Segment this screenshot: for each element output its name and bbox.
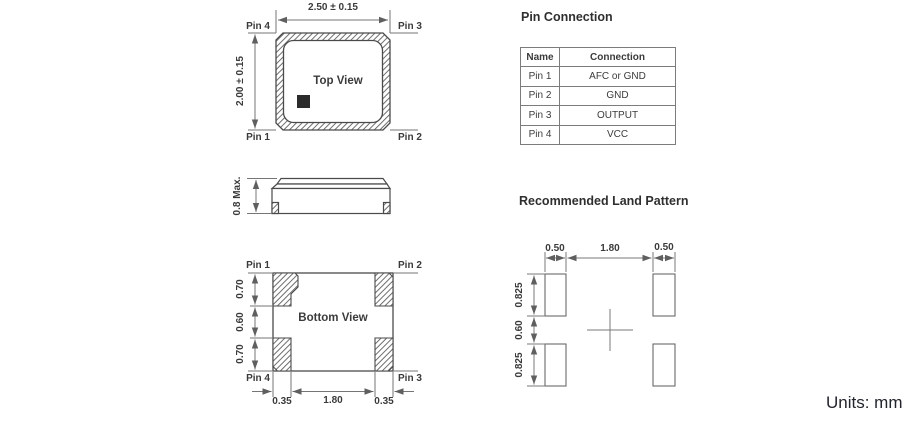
top-view-width-dimension: 2.50 ± 0.15	[308, 3, 358, 13]
land-pad-width-right: 0.50	[654, 243, 673, 253]
bottom-view-dim-top: 0.70	[236, 279, 246, 298]
drawing-linework	[0, 0, 915, 431]
bottom-view-pad-pitch: 1.80	[323, 396, 342, 406]
package-drawing-sheet: 2.50 ± 0.15 2.00 ± 0.15 Pin 4 Pin 3 Pin …	[0, 0, 915, 431]
top-view-height-dimension: 2.00 ± 0.15	[236, 56, 246, 106]
land-pad-height-bottom: 0.825	[515, 352, 525, 377]
pin-connection-table: Name Connection Pin 1 AFC or GND Pin 2 G…	[520, 47, 676, 145]
bottom-view-title: Bottom View	[298, 313, 367, 325]
land-pad-gap: 1.80	[600, 244, 619, 254]
bottom-view-pin1-label: Pin 1	[246, 261, 270, 271]
units-label: Units: mm	[826, 394, 903, 411]
table-row: Pin 3 OUTPUT	[521, 106, 676, 125]
land-pad-height-top: 0.825	[515, 282, 525, 307]
pin2-connection: GND	[560, 86, 676, 105]
header-name: Name	[521, 48, 560, 67]
top-view-title: Top View	[313, 76, 362, 88]
table-header-row: Name Connection	[521, 48, 676, 67]
bottom-view-pad-width-left: 0.35	[272, 397, 291, 407]
top-view-pin1-label: Pin 1	[246, 133, 270, 143]
table-row: Pin 4 VCC	[521, 125, 676, 144]
pin-connection-title: Pin Connection	[521, 11, 613, 24]
top-view-pin3-label: Pin 3	[398, 22, 422, 32]
table-row: Pin 1 AFC or GND	[521, 67, 676, 86]
pin2-name: Pin 2	[521, 86, 560, 105]
pin1-connection: AFC or GND	[560, 67, 676, 86]
pin3-connection: OUTPUT	[560, 106, 676, 125]
side-view-height-dimension: 0.8 Max.	[233, 177, 243, 216]
table-row: Pin 2 GND	[521, 86, 676, 105]
bottom-view-pin2-label: Pin 2	[398, 261, 422, 271]
land-pad-width-left: 0.50	[545, 244, 564, 254]
bottom-view-pin4-label: Pin 4	[246, 374, 270, 384]
bottom-view-pad-width-right: 0.35	[374, 397, 393, 407]
land-pad-vertical-gap: 0.60	[515, 320, 525, 339]
bottom-view-dim-bottom: 0.70	[236, 344, 246, 363]
top-view-pin2-label: Pin 2	[398, 133, 422, 143]
bottom-view-pin3-label: Pin 3	[398, 374, 422, 384]
pin4-name: Pin 4	[521, 125, 560, 144]
pin1-name: Pin 1	[521, 67, 560, 86]
top-view-pin4-label: Pin 4	[246, 22, 270, 32]
pin3-name: Pin 3	[521, 106, 560, 125]
bottom-view-dim-middle: 0.60	[236, 312, 246, 331]
land-pattern-title: Recommended Land Pattern	[519, 195, 688, 208]
pin4-connection: VCC	[560, 125, 676, 144]
header-connection: Connection	[560, 48, 676, 67]
